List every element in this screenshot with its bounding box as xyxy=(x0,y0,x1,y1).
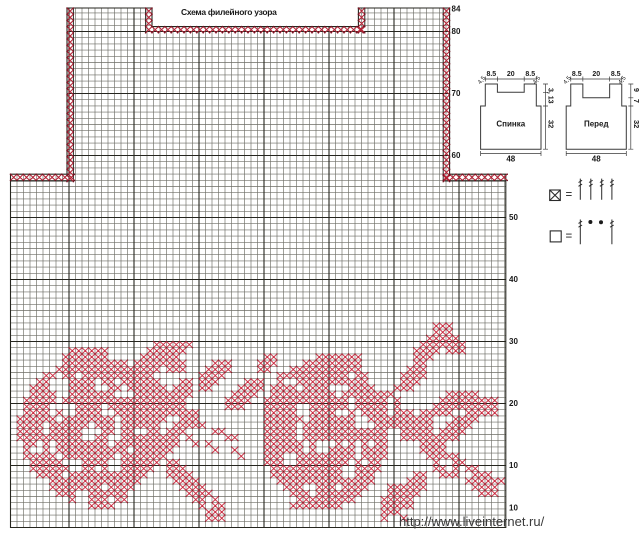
svg-text:70: 70 xyxy=(452,89,461,98)
svg-text:32: 32 xyxy=(547,120,556,128)
svg-text:=: = xyxy=(566,231,573,243)
svg-text:30: 30 xyxy=(509,337,518,346)
svg-text:8.5: 8.5 xyxy=(486,71,496,78)
svg-text:10: 10 xyxy=(509,461,518,470)
svg-text:8.5: 8.5 xyxy=(611,71,621,78)
svg-text:80: 80 xyxy=(452,27,461,36)
svg-text:40: 40 xyxy=(509,275,518,284)
svg-text:3, 13: 3, 13 xyxy=(547,88,554,104)
svg-text:50: 50 xyxy=(509,213,518,222)
svg-text:http://www.liveinternet.ru/: http://www.liveinternet.ru/ xyxy=(399,514,545,529)
svg-text:48: 48 xyxy=(592,155,601,164)
svg-text:=: = xyxy=(566,189,573,201)
svg-text:20: 20 xyxy=(592,71,600,78)
svg-text:8.5: 8.5 xyxy=(525,71,535,78)
svg-text:60: 60 xyxy=(452,151,461,160)
svg-text:Спинка: Спинка xyxy=(496,120,525,129)
svg-text:32: 32 xyxy=(632,120,640,128)
svg-text:9: 9 xyxy=(632,88,639,92)
svg-text:Схема филейного узора: Схема филейного узора xyxy=(181,7,277,17)
svg-text:84: 84 xyxy=(452,5,461,14)
svg-text:Перед: Перед xyxy=(584,120,609,129)
svg-text:7: 7 xyxy=(632,99,639,103)
svg-text:48: 48 xyxy=(506,155,515,164)
svg-text:20: 20 xyxy=(509,399,518,408)
svg-text:20: 20 xyxy=(507,71,515,78)
svg-text:10: 10 xyxy=(509,504,518,513)
svg-text:8.5: 8.5 xyxy=(572,71,582,78)
